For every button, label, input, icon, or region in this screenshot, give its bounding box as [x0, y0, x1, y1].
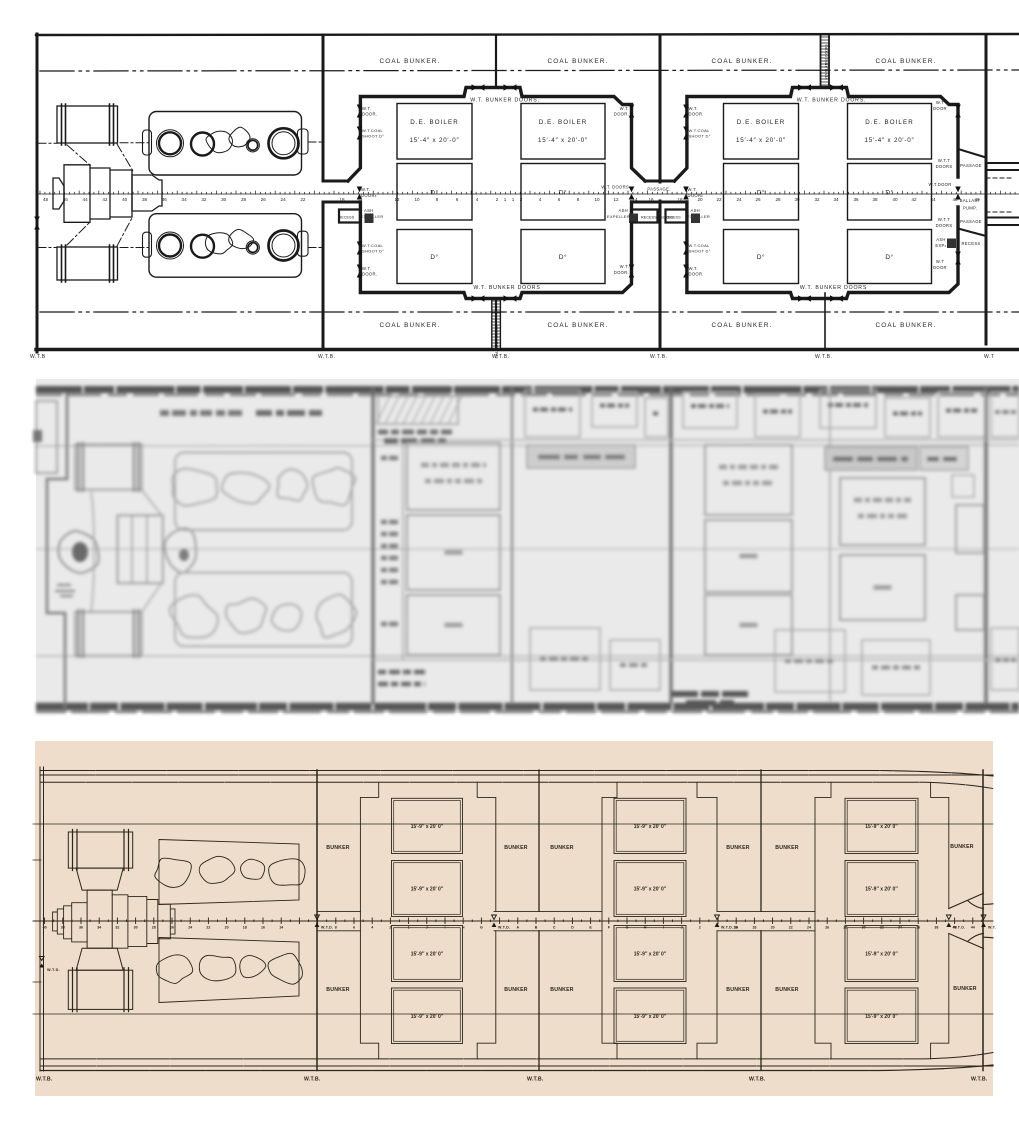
svg-text:18: 18 — [243, 926, 247, 930]
svg-text:15′-9″ x 20′ 0″: 15′-9″ x 20′ 0″ — [411, 887, 444, 893]
svg-text:W.T.: W.T. — [988, 926, 996, 930]
svg-text:W.T.B.: W.T.B. — [527, 1077, 544, 1083]
svg-text:14: 14 — [279, 926, 283, 930]
svg-text:36: 36 — [79, 926, 83, 930]
svg-text:15′-9″ x 20′ 0″: 15′-9″ x 20′ 0″ — [634, 1014, 667, 1020]
svg-text:24: 24 — [807, 926, 811, 930]
svg-text:BUNKER: BUNKER — [504, 845, 527, 851]
svg-text:BUNKER: BUNKER — [726, 987, 749, 993]
svg-text:D.E. BOILER: D.E. BOILER — [539, 119, 588, 126]
svg-text:DOOR.: DOOR. — [362, 272, 377, 277]
svg-text:15′-9″ x 20′ 0″: 15′-9″ x 20′ 0″ — [411, 1014, 444, 1020]
svg-text:24: 24 — [736, 197, 742, 202]
svg-text:15′-9″ x 20′ 0″: 15′-9″ x 20′ 0″ — [634, 952, 667, 958]
svg-text:W.T: W.T — [936, 100, 944, 105]
svg-text:BUNKER: BUNKER — [550, 987, 573, 993]
svg-text:EXPELLER: EXPELLER — [607, 214, 630, 219]
svg-text:8: 8 — [577, 197, 580, 202]
svg-text:COAL BUNKER.: COAL BUNKER. — [379, 322, 440, 329]
svg-text:26: 26 — [825, 926, 829, 930]
svg-text:W.T.B: W.T.B — [30, 354, 46, 360]
svg-text:38: 38 — [934, 926, 938, 930]
svg-text:RECESS: RECESS — [665, 216, 681, 220]
svg-text:32: 32 — [115, 926, 119, 930]
svg-text:W.T.D.: W.T.D. — [321, 926, 333, 930]
svg-text:34: 34 — [97, 926, 101, 930]
svg-text:COAL BUNKER.: COAL BUNKER. — [875, 322, 936, 329]
svg-text:30: 30 — [221, 197, 227, 202]
svg-text:W.T.: W.T. — [620, 106, 629, 111]
svg-text:W.T.B.: W.T.B. — [971, 1077, 988, 1083]
svg-text:15′-9″ x 20′ 0″: 15′-9″ x 20′ 0″ — [865, 1014, 898, 1020]
svg-text:15′-9″ x 20′ 0″: 15′-9″ x 20′ 0″ — [634, 824, 667, 830]
svg-text:BUNKER: BUNKER — [775, 845, 798, 851]
svg-text:D°: D° — [757, 188, 765, 196]
svg-text:28: 28 — [241, 197, 247, 202]
svg-text:BUNKER: BUNKER — [950, 844, 973, 850]
svg-text:DOORS: DOORS — [936, 223, 953, 228]
svg-text:W.T: W.T — [984, 354, 994, 360]
svg-text:W.T.B.: W.T.B. — [815, 354, 832, 360]
svg-text:DOORₕ: DOORₕ — [688, 193, 704, 198]
svg-text:W.T.COAL: W.T.COAL — [362, 243, 384, 248]
svg-text:W.T.D.: W.T.D. — [498, 926, 510, 930]
svg-text:W.T.: W.T. — [689, 266, 698, 271]
svg-text:BUNKER: BUNKER — [953, 986, 976, 992]
svg-text:DOOR.: DOOR. — [362, 112, 377, 117]
svg-text:W.T.O.: W.T.O. — [953, 926, 966, 930]
svg-text:BUNKER: BUNKER — [550, 845, 573, 851]
svg-text:BUNKER: BUNKER — [326, 987, 349, 993]
svg-text:40: 40 — [43, 926, 47, 930]
svg-text:40: 40 — [122, 197, 128, 202]
svg-text:42: 42 — [911, 197, 917, 202]
svg-text:15′-9″ x 20′ 0″: 15′-9″ x 20′ 0″ — [865, 887, 898, 893]
svg-text:D°: D° — [430, 188, 438, 196]
svg-text:W.T. DOORS: W.T. DOORS — [601, 185, 629, 190]
svg-text:DOOR.: DOOR. — [614, 112, 629, 117]
svg-text:D°: D° — [885, 188, 893, 196]
svg-text:W.T: W.T — [936, 259, 944, 264]
svg-text:4: 4 — [371, 926, 373, 930]
svg-text:44: 44 — [971, 926, 975, 930]
svg-text:DOORS: DOORS — [936, 164, 953, 169]
svg-text:15′-4″ x 20′-0″: 15′-4″ x 20′-0″ — [736, 137, 786, 144]
svg-text:W.T.COAL: W.T.COAL — [362, 128, 384, 133]
svg-text:20: 20 — [771, 926, 775, 930]
svg-text:2: 2 — [699, 926, 701, 930]
svg-text:15′-9″ x 20′ 0″: 15′-9″ x 20′ 0″ — [865, 952, 898, 958]
svg-text:DOOR: DOOR — [933, 265, 947, 270]
svg-text:D°: D° — [559, 253, 567, 261]
svg-text:BUNKER: BUNKER — [775, 987, 798, 993]
svg-text:D.E. BOILER: D.E. BOILER — [737, 119, 786, 126]
svg-text:W.T. BUNKER DOORS.: W.T. BUNKER DOORS. — [797, 98, 866, 104]
svg-text:W.T.B.: W.T.B. — [749, 1077, 766, 1083]
svg-text:20: 20 — [225, 926, 229, 930]
svg-text:SHOOT D°: SHOOT D° — [362, 249, 384, 254]
svg-text:DOOR.: DOOR. — [614, 270, 629, 275]
svg-text:W.T.D.: W.T.D. — [47, 968, 60, 972]
svg-text:W.T.D.16: W.T.D.16 — [721, 926, 738, 930]
svg-text:W.T.COAL: W.T.COAL — [689, 243, 711, 248]
svg-text:22: 22 — [716, 197, 722, 202]
svg-text:W.T.B.: W.T.B. — [304, 1077, 321, 1083]
svg-text:6: 6 — [558, 197, 561, 202]
svg-text:15′-9″ x 20′ 0″: 15′-9″ x 20′ 0″ — [865, 824, 898, 830]
svg-text:32: 32 — [201, 197, 207, 202]
svg-text:10: 10 — [414, 197, 420, 202]
svg-text:PUMP.: PUMP. — [963, 206, 977, 211]
svg-text:15′-9″ x 20′ 0″: 15′-9″ x 20′ 0″ — [411, 952, 444, 958]
svg-text:DOORₕ: DOORₕ — [361, 193, 377, 198]
svg-text:ASH: ASH — [691, 208, 701, 213]
svg-text:D°: D° — [430, 253, 438, 261]
svg-text:SHOOT D°: SHOOT D° — [689, 249, 711, 254]
svg-text:42: 42 — [102, 197, 108, 202]
svg-text:W.T.T: W.T.T — [938, 158, 950, 163]
svg-text:30: 30 — [134, 926, 138, 930]
svg-text:15′-4″ x 20′-0″: 15′-4″ x 20′-0″ — [538, 137, 588, 144]
svg-text:BALLAST: BALLAST — [960, 198, 981, 203]
svg-text:D: D — [571, 926, 574, 930]
svg-text:16: 16 — [261, 926, 265, 930]
svg-text:2: 2 — [496, 197, 499, 202]
svg-text:G: G — [480, 926, 483, 930]
svg-text:48: 48 — [43, 197, 49, 202]
svg-text:15′-4″ x 20′-0″: 15′-4″ x 20′-0″ — [864, 137, 914, 144]
svg-text:BUNKER: BUNKER — [726, 845, 749, 851]
svg-text:ASH: ASH — [364, 208, 374, 213]
svg-text:26: 26 — [261, 197, 267, 202]
svg-text:38: 38 — [61, 926, 65, 930]
svg-text:W.T.: W.T. — [620, 264, 629, 269]
svg-text:24: 24 — [188, 926, 192, 930]
svg-text:W.T.B.: W.T.B. — [36, 1077, 53, 1083]
svg-text:6: 6 — [353, 926, 355, 930]
svg-text:ASH: ASH — [618, 208, 628, 213]
svg-text:15′-9″ x 20′ 0″: 15′-9″ x 20′ 0″ — [411, 824, 444, 830]
svg-text:28: 28 — [775, 197, 781, 202]
svg-text:SHOOT D°: SHOOT D° — [689, 134, 711, 139]
svg-text:COAL BUNKER.: COAL BUNKER. — [711, 58, 772, 65]
svg-text:38: 38 — [872, 197, 878, 202]
svg-text:COAL BUNKER.: COAL BUNKER. — [711, 322, 772, 329]
svg-text:B: B — [535, 926, 538, 930]
svg-text:W.T.B.: W.T.B. — [318, 354, 335, 360]
svg-text:BUNKER: BUNKER — [326, 845, 349, 851]
svg-text:18: 18 — [752, 926, 756, 930]
svg-text:W.T.: W.T. — [362, 266, 371, 271]
svg-text:D°: D° — [885, 253, 893, 261]
svg-text:22: 22 — [789, 926, 793, 930]
svg-text:EXPₕ: EXPₕ — [935, 243, 946, 248]
svg-text:34: 34 — [182, 197, 188, 202]
svg-text:44: 44 — [83, 197, 89, 202]
svg-text:32: 32 — [814, 197, 820, 202]
svg-text:28: 28 — [152, 926, 156, 930]
svg-text:24: 24 — [281, 197, 287, 202]
svg-text:RECESS: RECESS — [339, 216, 355, 220]
svg-text:4: 4 — [539, 197, 542, 202]
svg-text:DOOR.: DOOR. — [689, 272, 704, 277]
svg-text:COAL BUNKER.: COAL BUNKER. — [547, 322, 608, 329]
svg-text:DOOR: DOOR — [933, 106, 947, 111]
svg-text:W.T.B.: W.T.B. — [650, 354, 667, 360]
svg-text:1: 1 — [504, 197, 507, 202]
svg-text:PASSAGE: PASSAGE — [960, 163, 982, 168]
svg-text:PASSAGE.: PASSAGE. — [647, 187, 670, 192]
svg-text:22: 22 — [300, 197, 306, 202]
svg-text:RECESS: RECESS — [961, 241, 980, 246]
svg-text:W.T.: W.T. — [361, 187, 370, 192]
svg-text:D°: D° — [757, 253, 765, 261]
svg-text:12: 12 — [613, 197, 619, 202]
svg-text:W.T.T: W.T.T — [938, 217, 950, 222]
svg-text:COAL BUNKER.: COAL BUNKER. — [547, 58, 608, 65]
svg-text:COAL BUNKER.: COAL BUNKER. — [875, 58, 936, 65]
svg-text:W.T.: W.T. — [362, 106, 371, 111]
svg-text:D.E. BOILER: D.E. BOILER — [865, 119, 914, 126]
svg-text:PASSAGE: PASSAGE — [960, 219, 982, 224]
svg-text:34: 34 — [833, 197, 839, 202]
svg-text:W.T.DOOR: W.T.DOOR — [928, 182, 951, 187]
svg-text:A: A — [516, 926, 519, 930]
svg-text:D.E. BOILER: D.E. BOILER — [410, 119, 459, 126]
svg-text:10: 10 — [594, 197, 600, 202]
svg-text:VENTILATING DOORS: VENTILATING DOORS — [825, 44, 829, 80]
svg-text:W.T.B.: W.T.B. — [492, 354, 509, 360]
svg-text:W.T. BUNKER DOORS: W.T. BUNKER DOORS — [800, 285, 867, 291]
svg-text:6: 6 — [456, 197, 459, 202]
svg-text:22: 22 — [206, 926, 210, 930]
svg-text:40: 40 — [892, 197, 898, 202]
svg-text:W.T.: W.T. — [688, 187, 697, 192]
svg-text:36: 36 — [853, 197, 859, 202]
svg-text:W.T. BUNKER DOORS: W.T. BUNKER DOORS — [473, 285, 540, 291]
svg-text:15′-9″ x 20′ 0″: 15′-9″ x 20′ 0″ — [634, 887, 667, 893]
svg-text:COAL BUNKER.: COAL BUNKER. — [379, 58, 440, 65]
svg-text:SHOOT D°: SHOOT D° — [362, 134, 384, 139]
svg-text:1: 1 — [512, 197, 515, 202]
svg-text:8: 8 — [335, 926, 337, 930]
svg-text:D°: D° — [559, 188, 567, 196]
svg-text:C: C — [553, 926, 556, 930]
svg-text:W.T. BUNKER DOORS.: W.T. BUNKER DOORS. — [470, 98, 539, 104]
svg-text:BUNKER: BUNKER — [504, 987, 527, 993]
svg-text:ASH: ASH — [936, 237, 946, 242]
svg-text:W.T.COAL: W.T.COAL — [689, 128, 711, 133]
svg-text:15′-4″ x 20′-0″: 15′-4″ x 20′-0″ — [409, 137, 459, 144]
svg-text:4: 4 — [476, 197, 479, 202]
svg-text:26: 26 — [755, 197, 761, 202]
svg-text:W.T.: W.T. — [689, 106, 698, 111]
svg-text:38: 38 — [142, 197, 148, 202]
svg-text:8: 8 — [436, 197, 439, 202]
svg-text:DOOR.: DOOR. — [689, 112, 704, 117]
